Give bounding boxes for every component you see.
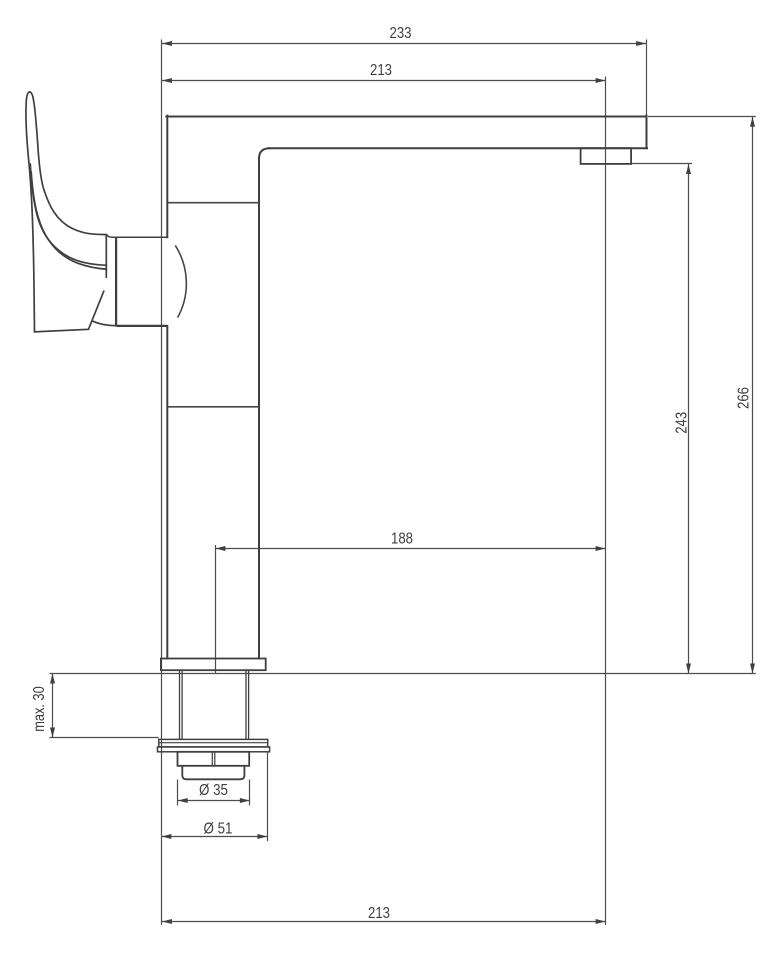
svg-text:max. 30: max. 30 — [31, 686, 48, 732]
svg-text:Ø 51: Ø 51 — [204, 820, 233, 837]
svg-text:Ø 35: Ø 35 — [199, 782, 228, 799]
svg-text:213: 213 — [368, 905, 390, 922]
svg-text:233: 233 — [390, 25, 412, 42]
svg-text:213: 213 — [370, 62, 392, 79]
svg-text:266: 266 — [736, 387, 753, 409]
svg-text:243: 243 — [674, 412, 691, 434]
svg-text:188: 188 — [391, 531, 413, 548]
